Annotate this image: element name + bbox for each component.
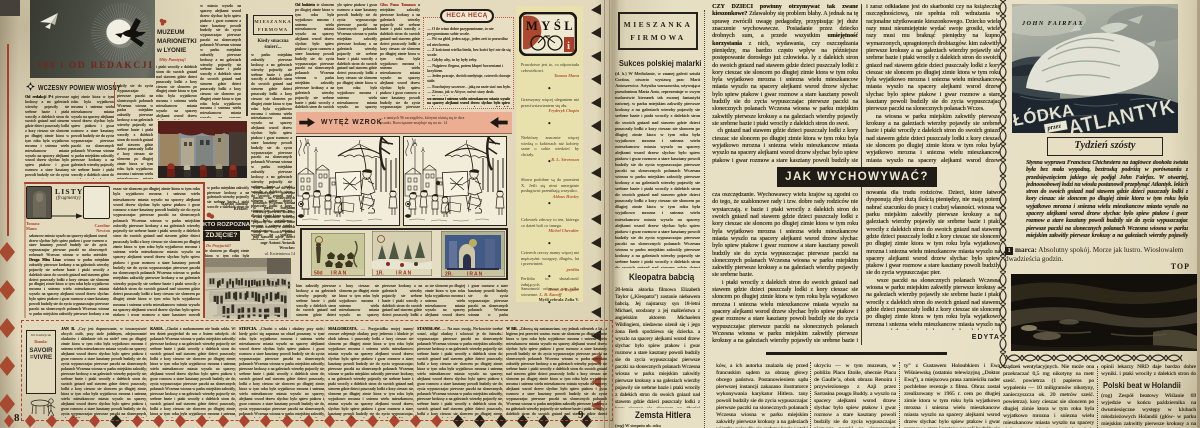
svg-text:JOHN FAIRFAX: JOHN FAIRFAX	[1021, 20, 1084, 27]
